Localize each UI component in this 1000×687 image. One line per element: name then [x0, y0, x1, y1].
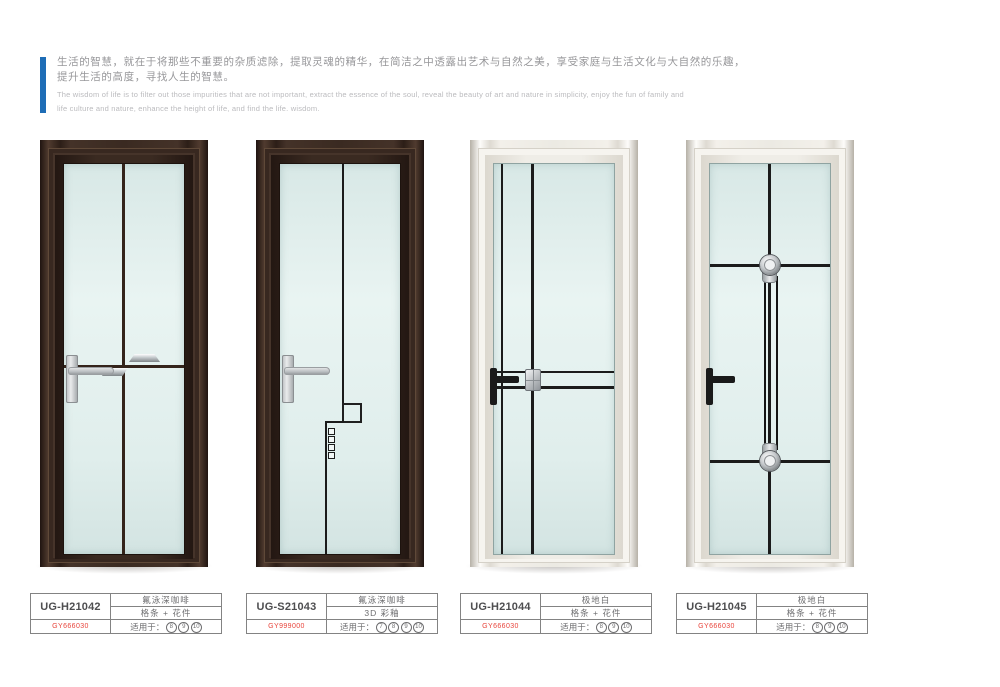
model-code: UG-H21045 — [677, 594, 757, 620]
product-label-4: UG-H21045 极地白 格条 + 花件 GY666030 适用于：8910 — [676, 593, 868, 634]
deco-dot — [328, 428, 335, 435]
door-handle — [492, 376, 519, 383]
finish-name: 极地白 — [541, 594, 651, 607]
applicable-prefix: 适用于： — [130, 621, 164, 633]
circled-number: 10 — [413, 622, 424, 633]
door-image-2 — [256, 140, 424, 567]
circled-number: 7 — [376, 622, 387, 633]
intro-cn-line1: 生活的智慧，就在于将那些不重要的杂质滤除，提取灵魂的精华，在简洁之中透露出艺术与… — [57, 54, 745, 69]
grid-line-vertical-left — [501, 164, 503, 554]
color-code: GY666030 — [677, 620, 757, 633]
door-glass — [64, 164, 184, 554]
applicable-numbers: 8910 — [594, 620, 632, 633]
model-code: UG-H21044 — [461, 594, 541, 620]
intro-en-line2: life culture and nature, enhance the hei… — [57, 104, 320, 113]
circled-number: 10 — [191, 622, 202, 633]
product-label-3: UG-H21044 极地白 格条 + 花件 GY666030 适用于：8910 — [460, 593, 652, 634]
applicable-prefix: 适用于： — [340, 621, 374, 633]
catalog-page: 生活的智慧，就在于将那些不重要的杂质滤除，提取灵魂的精华，在简洁之中透露出艺术与… — [0, 0, 1000, 687]
deco-dot — [328, 444, 335, 451]
model-code: UG-H21042 — [31, 594, 111, 620]
rosette-top — [760, 255, 780, 275]
color-code: GY666030 — [31, 620, 111, 633]
model-code: UG-S21043 — [247, 594, 327, 620]
flower-piece-right — [129, 354, 160, 362]
applicable-row: 适用于：8910 — [111, 620, 221, 633]
circled-number: 8 — [166, 622, 177, 633]
finish-name: 氟泳深咖啡 — [111, 594, 221, 607]
door-handle — [284, 367, 330, 375]
handle-backplate — [282, 355, 294, 403]
product-label-2: UG-S21043 氟泳深咖啡 3D 彩釉 GY999000 适用于：78910 — [246, 593, 438, 634]
grid-line-horizontal-upper — [494, 371, 614, 373]
door-image-1 — [40, 140, 208, 567]
door-handle — [708, 376, 735, 383]
craft-name: 格条 + 花件 — [111, 607, 221, 620]
applicable-numbers: 78910 — [374, 620, 424, 633]
craft-name: 格条 + 花件 — [541, 607, 651, 620]
door-image-3 — [470, 140, 638, 567]
finish-name: 极地白 — [757, 594, 867, 607]
grid-line-horizontal-lower — [494, 386, 614, 389]
door-glass — [710, 164, 830, 554]
deco-line-vertical-upper — [342, 164, 344, 421]
circled-number: 8 — [388, 622, 399, 633]
applicable-numbers: 8910 — [164, 620, 202, 633]
applicable-row: 适用于：8910 — [757, 620, 867, 633]
deco-square-outline — [342, 403, 362, 423]
door-glass — [280, 164, 400, 554]
door-handle — [68, 367, 114, 375]
craft-name: 格条 + 花件 — [757, 607, 867, 620]
intro-en-line1: The wisdom of life is to filter out thos… — [57, 90, 684, 99]
handle-backplate — [706, 368, 713, 405]
rosette-bottom — [760, 451, 780, 471]
circled-number: 10 — [837, 622, 848, 633]
color-code: GY999000 — [247, 620, 327, 633]
handle-backplate — [490, 368, 497, 405]
circled-number: 9 — [824, 622, 835, 633]
grid-line-vertical-main — [531, 164, 534, 554]
craft-name: 3D 彩釉 — [327, 607, 437, 620]
ornament-connector — [525, 369, 541, 391]
applicable-prefix: 适用于： — [560, 621, 594, 633]
deco-dot — [328, 436, 335, 443]
applicable-numbers: 8910 — [810, 620, 848, 633]
mullion-vertical — [122, 164, 125, 554]
door-glass — [494, 164, 614, 554]
circled-number: 10 — [621, 622, 632, 633]
deco-line-vertical-lower — [325, 421, 327, 554]
handle-backplate — [66, 355, 78, 403]
deco-dot — [328, 452, 335, 459]
deco-line-jog — [325, 421, 344, 423]
pull-bar — [764, 276, 778, 450]
accent-bar — [40, 57, 46, 113]
circled-number: 9 — [608, 622, 619, 633]
circled-number: 8 — [812, 622, 823, 633]
circled-number: 8 — [596, 622, 607, 633]
finish-name: 氟泳深咖啡 — [327, 594, 437, 607]
applicable-row: 适用于：78910 — [327, 620, 437, 633]
product-label-1: UG-H21042 氟泳深咖啡 格条 + 花件 GY666030 适用于：891… — [30, 593, 222, 634]
circled-number: 9 — [178, 622, 189, 633]
door-image-4 — [686, 140, 854, 567]
intro-cn-line2: 提升生活的高度，寻找人生的智慧。 — [57, 69, 235, 84]
applicable-prefix: 适用于： — [776, 621, 810, 633]
color-code: GY666030 — [461, 620, 541, 633]
applicable-row: 适用于：8910 — [541, 620, 651, 633]
circled-number: 9 — [401, 622, 412, 633]
